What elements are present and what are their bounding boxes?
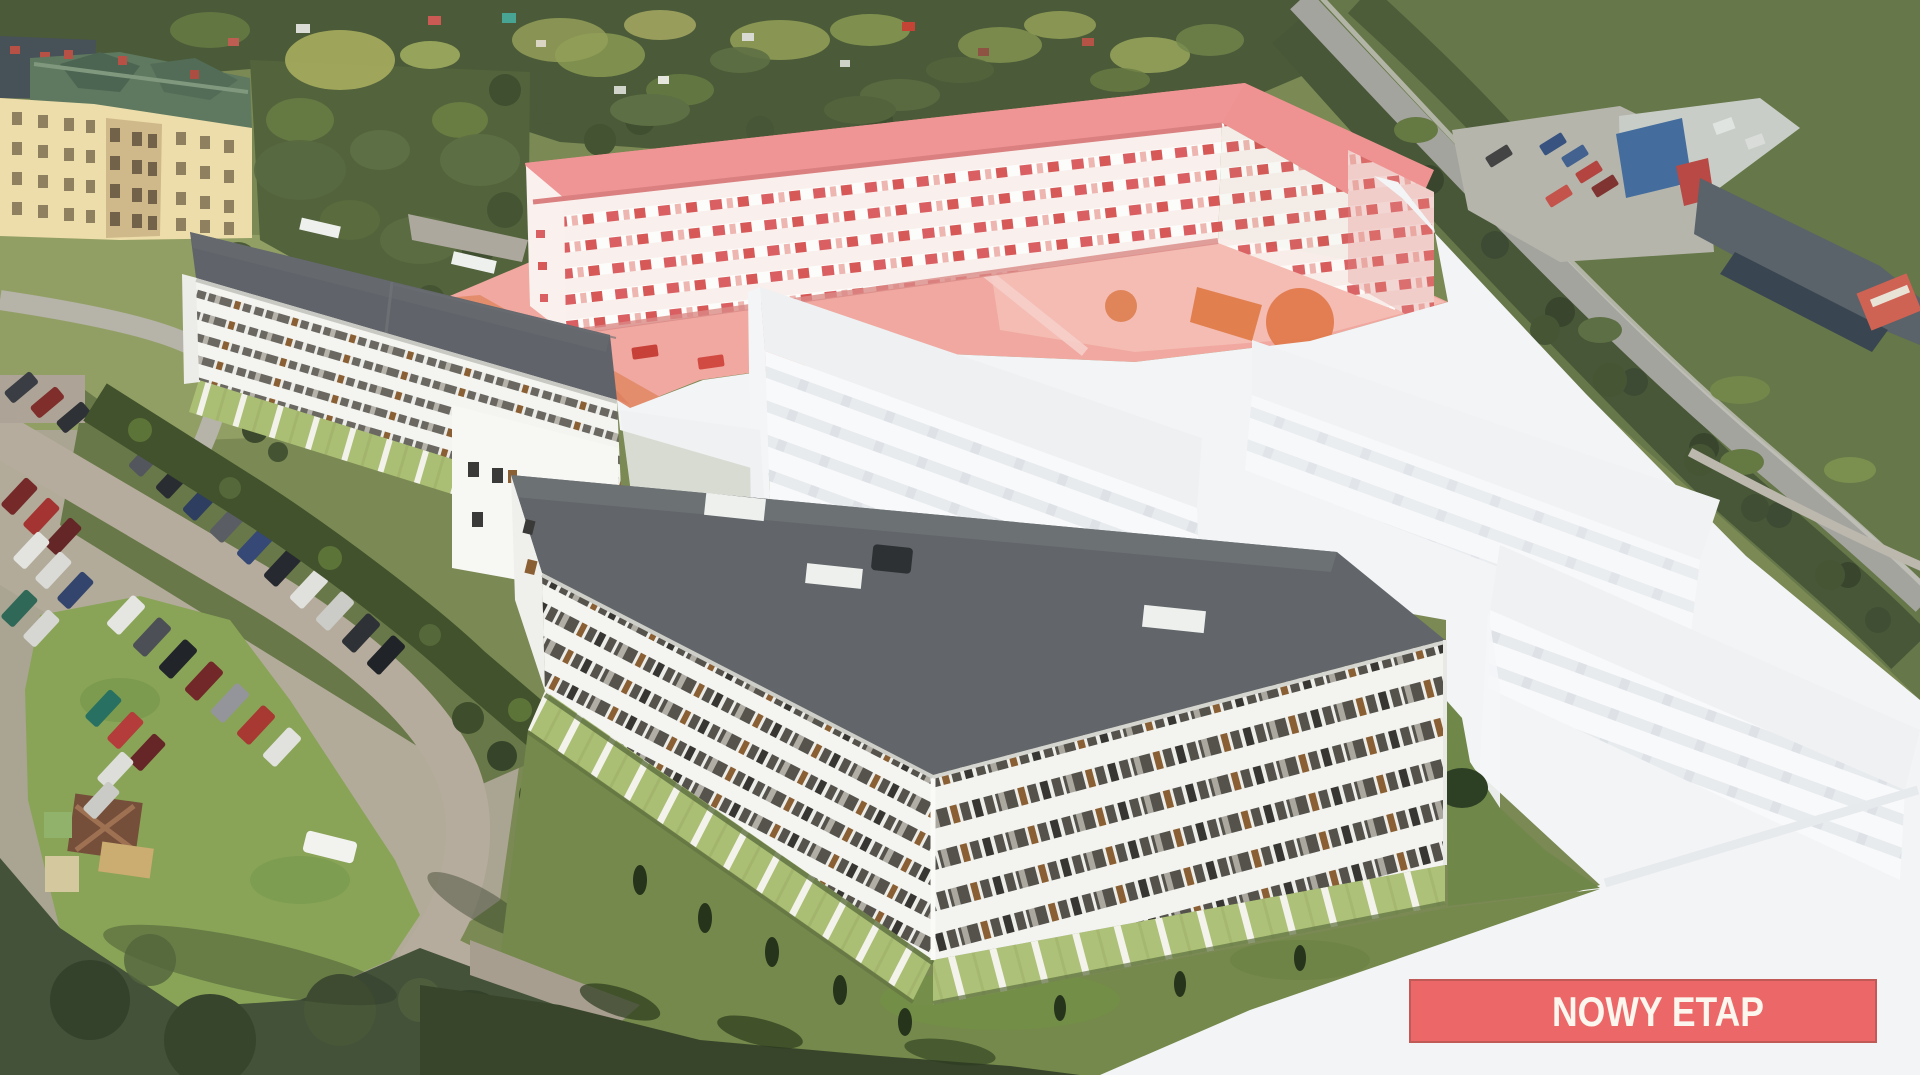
svg-text:NOWY ETAP: NOWY ETAP — [1552, 988, 1764, 1035]
